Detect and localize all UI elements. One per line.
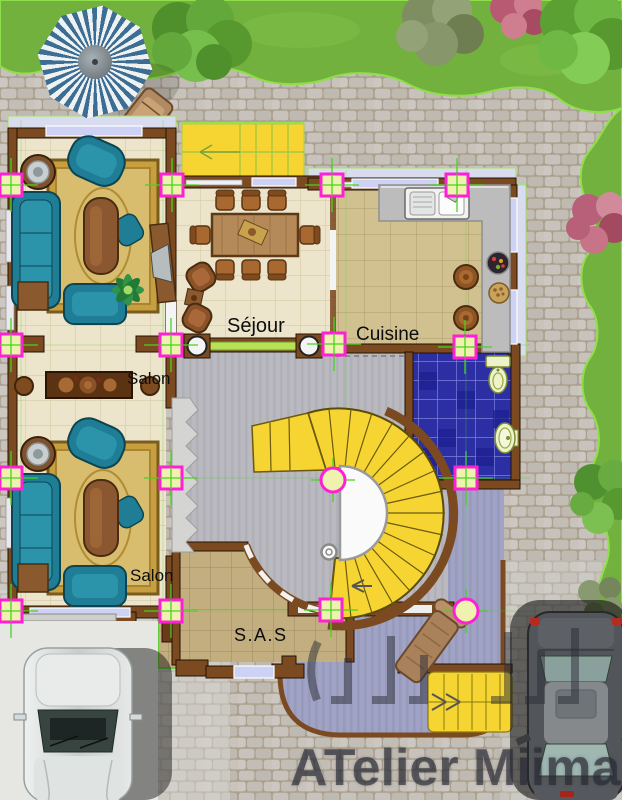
floor-plan-scene [0,0,622,800]
white-car [14,648,172,800]
floor-plan-canvas: Salon Séjour Cuisine Salon S.A.S ATelier… [0,0,622,800]
exterior-stairs-top [182,122,304,180]
salon-plant [112,274,144,306]
garage-door [20,614,116,621]
room-label-sejour: Séjour [227,315,285,338]
room-label-sas: S.A.S [234,625,288,646]
parasol-hub [76,43,114,81]
watermark-studio-name: ATelier Miimary [290,738,622,798]
room-label-cuisine: Cuisine [356,324,419,346]
sejour-window-band [210,342,298,350]
parasol-pole-icon [92,59,99,66]
room-label-salon-upper: Salon [127,369,170,389]
room-label-salon-lower: Salon [130,566,173,586]
